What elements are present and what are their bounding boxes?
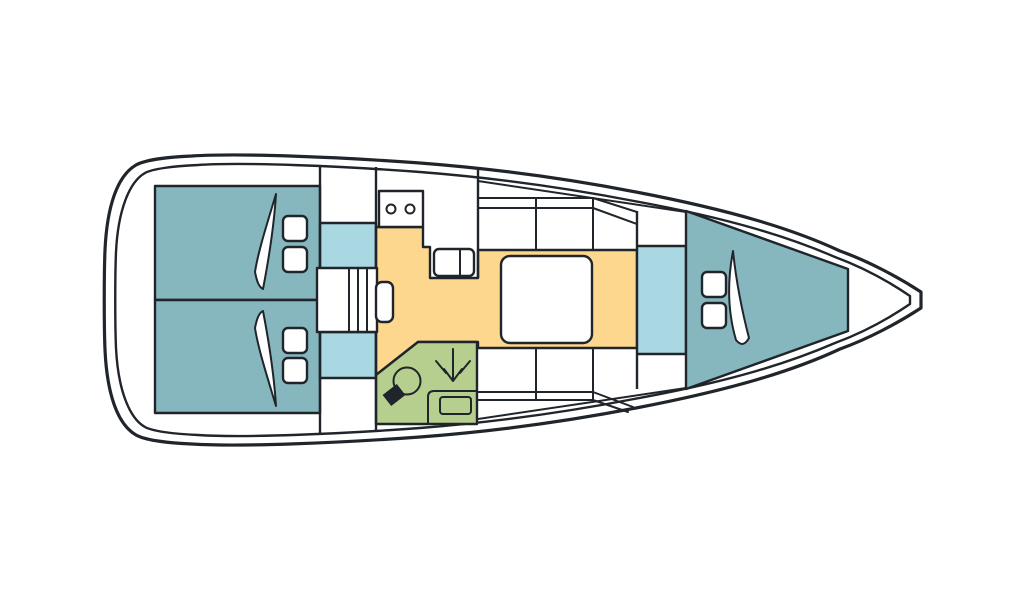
corridor-fore: [637, 246, 686, 354]
floor-plan-canvas: [0, 0, 1024, 600]
stairs-handle: [376, 282, 393, 322]
saloon-table: [501, 256, 592, 343]
pillow-fore-1: [702, 272, 726, 297]
yacht-floor-plan: [0, 0, 1024, 600]
pillow-starboard-2: [283, 358, 307, 383]
passage-starboard: [320, 332, 376, 378]
pillow-starboard-1: [283, 328, 307, 353]
aft-cabin-starboard: [155, 300, 320, 413]
pillow-fore-2: [702, 303, 726, 328]
pillow-port-2: [283, 247, 307, 272]
galley-sink-icon: [434, 249, 474, 276]
passage-port: [320, 223, 376, 270]
pillow-port-1: [283, 216, 307, 241]
aft-cabin-port: [155, 186, 320, 300]
